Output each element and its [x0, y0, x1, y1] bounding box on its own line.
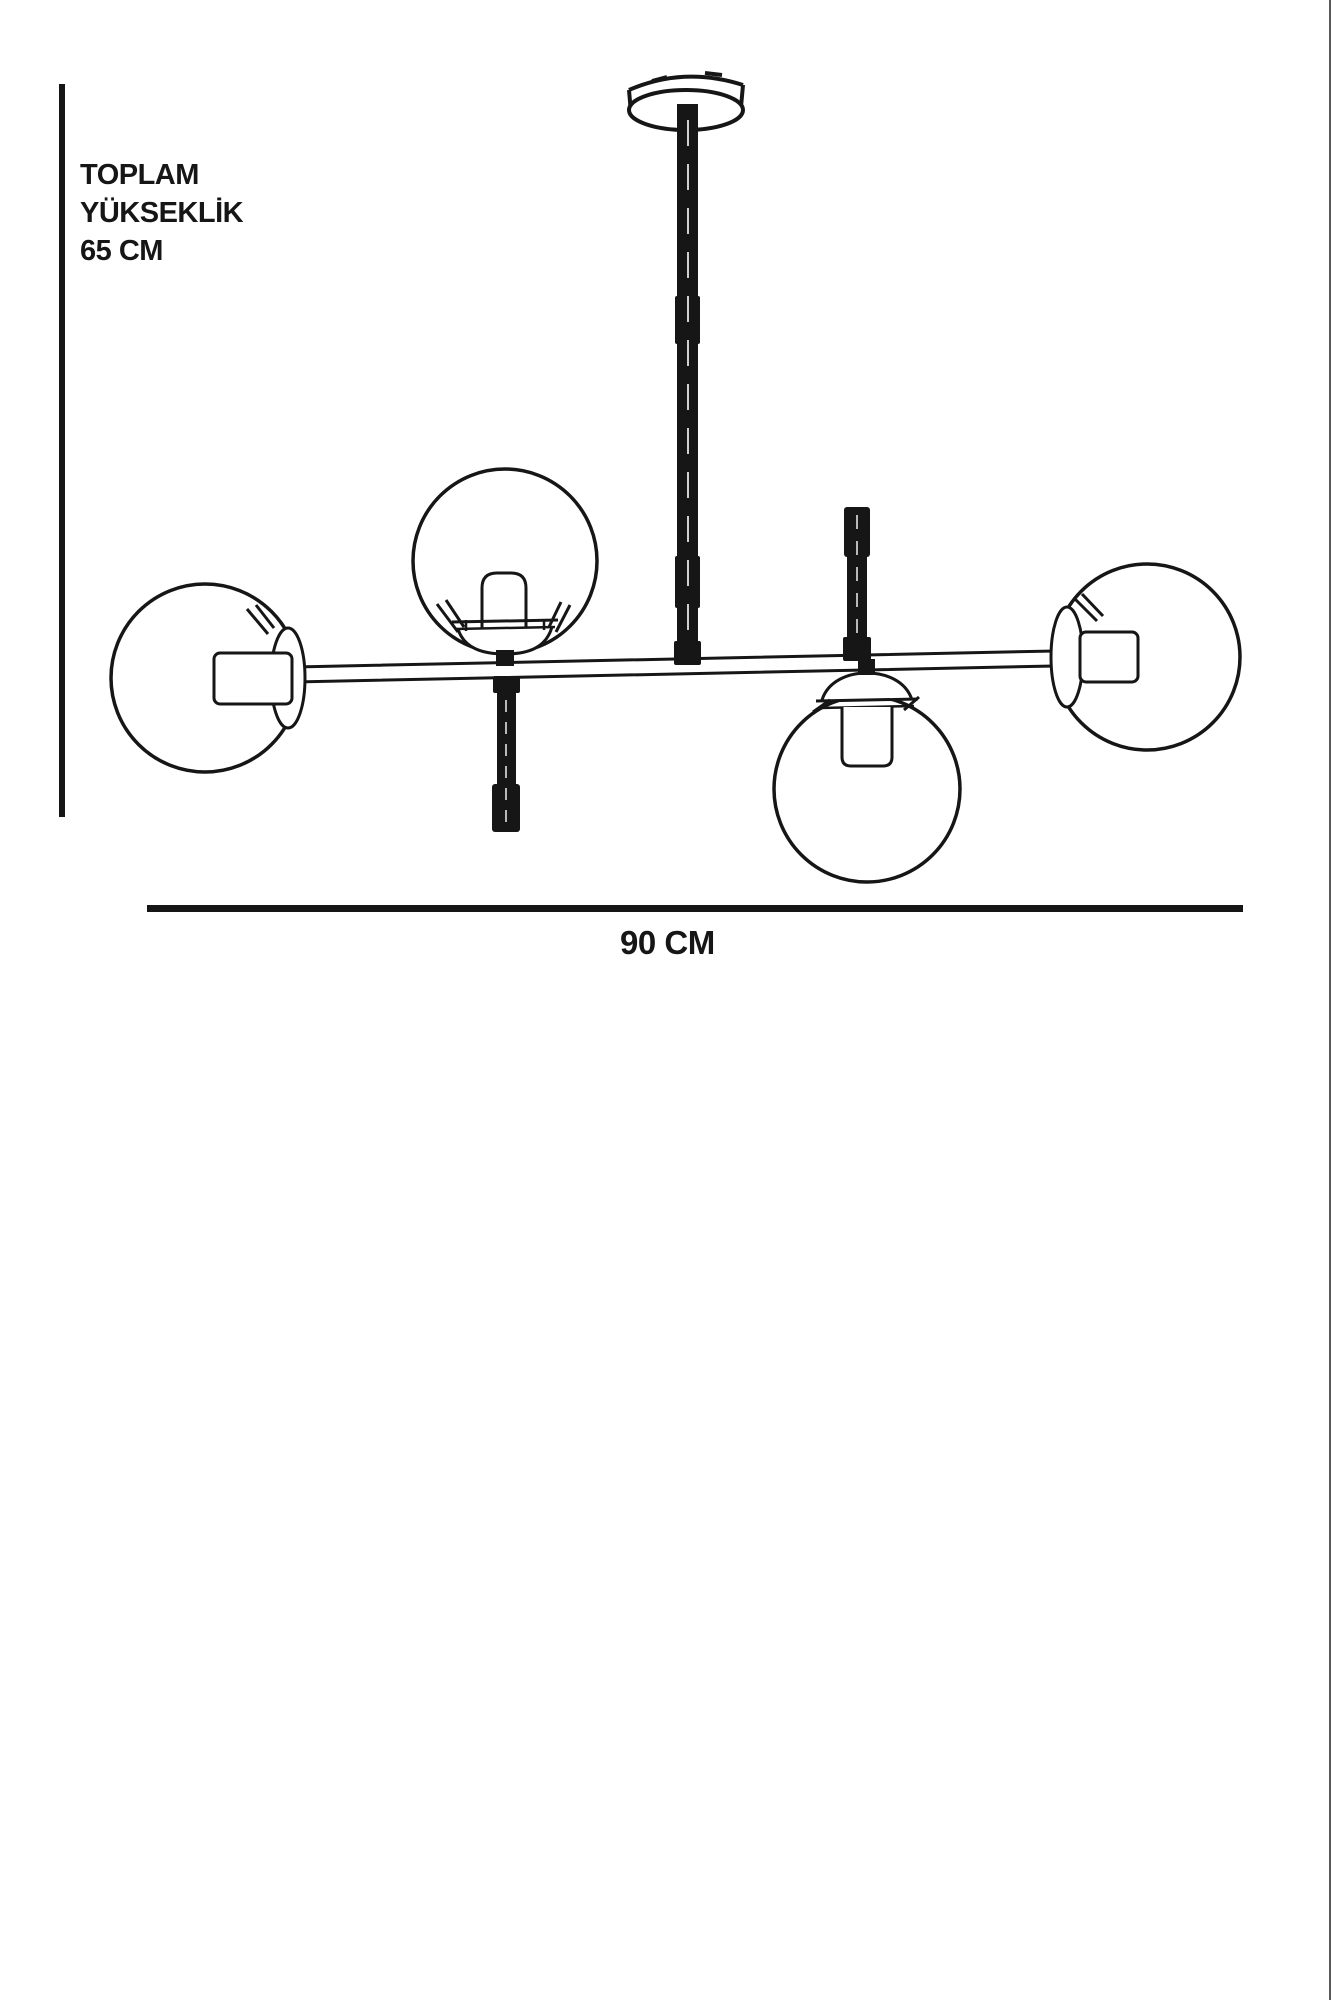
total-height-label-line3: 65 CM	[80, 232, 243, 270]
lower-stub-rod	[492, 672, 520, 832]
width-label: 90 CM	[620, 924, 715, 962]
upper-stub-bar-joint	[843, 637, 871, 661]
globe-left	[111, 584, 305, 772]
total-height-label-line1: TOPLAM	[80, 156, 243, 194]
globe2-fitter-cup	[458, 627, 552, 654]
globe1-bulb-socket	[214, 653, 292, 704]
globe3-fitter-rim	[816, 699, 918, 701]
globe3-bar-nub	[858, 659, 875, 675]
globe4-fitter-cup	[1051, 607, 1083, 707]
pendant-lamp-diagram	[0, 0, 1332, 2000]
main-stem	[675, 104, 700, 652]
globe-right	[1051, 564, 1240, 750]
globe2-bar-nub	[496, 650, 514, 666]
main-stem-bar-joint	[674, 641, 701, 665]
globe3-fitter-cup	[822, 673, 912, 700]
globe-bottom-center	[774, 673, 960, 882]
technical-drawing-page: TOPLAM YÜKSEKLİK 65 CM 90 CM	[0, 0, 1332, 2000]
globe4-bulb-socket	[1080, 632, 1138, 682]
globe-top-center	[413, 469, 597, 654]
globe2-fitter-rim	[452, 620, 558, 622]
total-height-label-line2: YÜKSEKLİK	[80, 194, 243, 232]
upper-stub-rod	[844, 507, 870, 648]
total-height-label: TOPLAM YÜKSEKLİK 65 CM	[80, 156, 243, 270]
canopy-top-rim	[629, 77, 743, 90]
lower-stub-bar-joint	[493, 676, 520, 693]
width-dimension-line	[147, 905, 1243, 912]
globe3-bulb-socket	[842, 707, 892, 766]
